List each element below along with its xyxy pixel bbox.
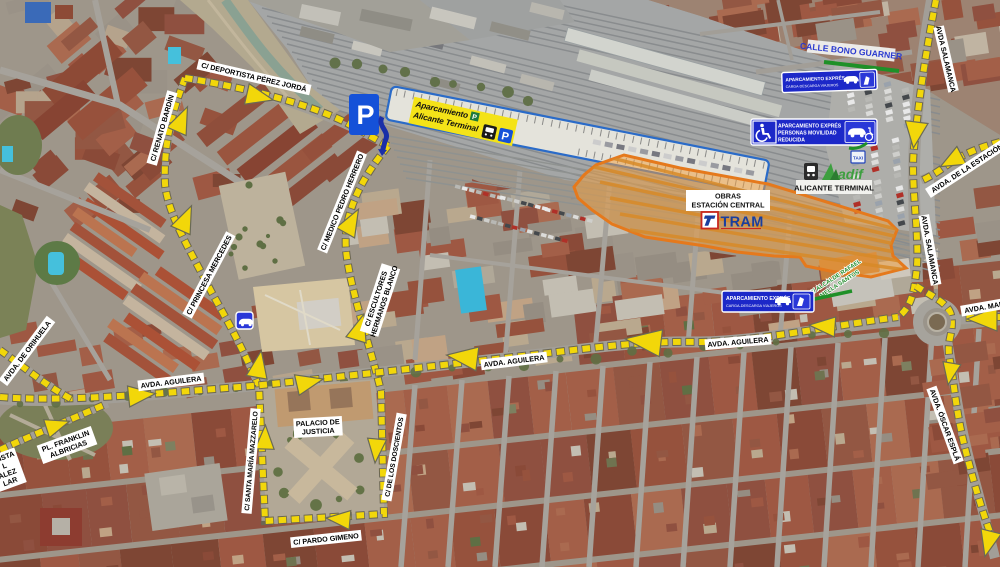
- svg-text:CARGA-DESCARGA VIAJEROS: CARGA-DESCARGA VIAJEROS: [726, 304, 782, 308]
- svg-text:REDUCIDA: REDUCIDA: [778, 138, 805, 144]
- svg-text:APARCAMIENTO EXPRÉS: APARCAMIENTO EXPRÉS: [778, 122, 842, 130]
- svg-text:ESTACIÓN CENTRAL: ESTACIÓN CENTRAL: [692, 201, 766, 210]
- svg-text:ALICANTE TERMINAL: ALICANTE TERMINAL: [794, 184, 874, 193]
- svg-text:JUSTICIA: JUSTICIA: [302, 426, 335, 437]
- svg-text:adif: adif: [838, 166, 864, 182]
- svg-text:TAXI: TAXI: [853, 156, 863, 161]
- svg-text:PERSONAS MOVILIDAD: PERSONAS MOVILIDAD: [778, 131, 837, 137]
- svg-text:P: P: [357, 100, 375, 130]
- svg-text:OBRAS: OBRAS: [715, 192, 741, 201]
